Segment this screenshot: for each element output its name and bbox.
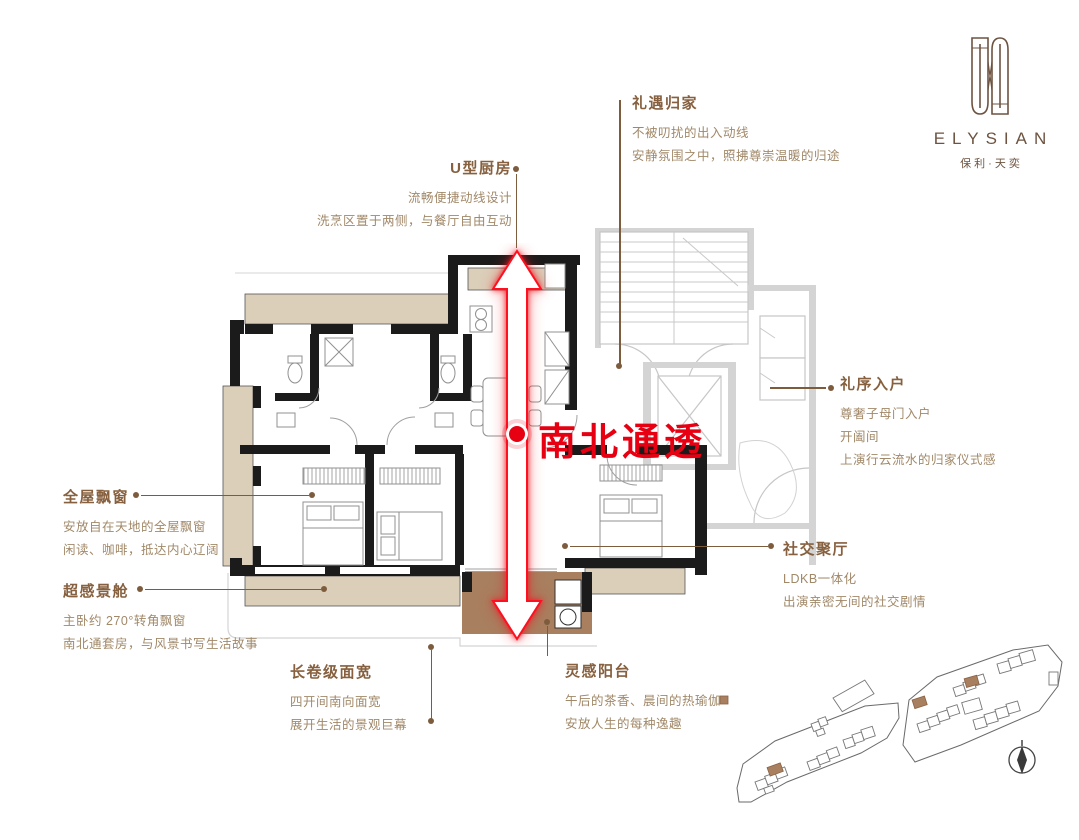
- annotation-title: 社交聚厅: [783, 538, 926, 559]
- annotation-line: 开阖间: [840, 426, 996, 449]
- bed-master: [303, 502, 363, 565]
- annotation-line: LDKB一体化: [783, 568, 926, 591]
- annotation-homecoming: 礼遇归家 不被叨扰的出入动线 安静氛围之中，照拂尊崇温暖的归途: [632, 92, 840, 168]
- leader-dot: [544, 619, 550, 625]
- leader-dot: [828, 385, 834, 391]
- annotation-line: 尊奢子母门入户: [840, 403, 996, 426]
- annotation-line: 展开生活的景观巨幕: [290, 714, 407, 737]
- annotation-title: U型厨房: [258, 157, 512, 178]
- bed-second: [377, 512, 442, 560]
- leader-dot: [321, 586, 327, 592]
- leader-kitchen: [516, 174, 518, 248]
- annotation-line: 主卧约 270°转角飘窗: [63, 610, 258, 633]
- leader-span: [431, 650, 433, 720]
- wardrobe: [380, 468, 440, 484]
- annotation-social: 社交聚厅 LDKB一体化 出演亲密无间的社交剧情: [783, 538, 926, 614]
- annotation-balcony: 灵感阳台 午后的茶香、晨间的热瑜伽 安放人生的每种逸趣: [565, 660, 721, 736]
- annotation-title: 超感景舱: [63, 580, 258, 601]
- annotation-line: 出演亲密无间的社交剧情: [783, 591, 926, 614]
- annotation-title: 长卷级面宽: [290, 661, 407, 682]
- brand-subname: 保利·天奕: [925, 155, 1055, 171]
- leader-balcony: [547, 626, 549, 656]
- annotation-baywindow: 全屋飘窗 安放自在天地的全屋飘窗 闲读、咖啡，抵达内心辽阔: [63, 486, 219, 562]
- annotation-title: 礼遇归家: [632, 92, 840, 113]
- annotation-line: 安放人生的每种逸趣: [565, 713, 721, 736]
- annotation-line: 流畅便捷动线设计: [258, 187, 512, 210]
- annotation-line: 安静氛围之中，照拂尊崇温暖的归途: [632, 145, 840, 168]
- leader-homecoming: [619, 100, 621, 366]
- north-south-label: 南北通透: [538, 411, 706, 466]
- sink-icon: [277, 413, 295, 427]
- annotation-span: 长卷级面宽 四开间南向面宽 展开生活的景观巨幕: [290, 661, 407, 737]
- annotation-line: 闲读、咖啡，抵达内心辽阔: [63, 539, 219, 562]
- wardrobe: [303, 468, 365, 484]
- annotation-title: 礼序入户: [840, 373, 996, 394]
- leader-dot: [562, 543, 568, 549]
- center-dot: [509, 426, 525, 442]
- elysian-logo-icon: [958, 36, 1022, 116]
- leader-dot: [428, 718, 434, 724]
- leader-dot: [768, 543, 774, 549]
- leader-dot: [616, 363, 622, 369]
- leader-dot: [513, 166, 519, 172]
- annotation-line: 洗烹区置于两侧，与餐厅自由互动: [258, 210, 512, 233]
- annotation-title: 全屋飘窗: [63, 486, 219, 507]
- brand-logo: ELYSIAN 保利·天奕: [925, 36, 1055, 171]
- annotation-line: 上演行云流水的归家仪式感: [840, 449, 996, 472]
- annotation-title: 灵感阳台: [565, 660, 721, 681]
- annotation-line: 南北通套房，与风景书写生活故事: [63, 633, 258, 656]
- leader-social: [570, 546, 768, 548]
- annotation-line: 四开间南向面宽: [290, 691, 407, 714]
- annotation-line: 安放自在天地的全屋飘窗: [63, 516, 219, 539]
- annotation-entry: 礼序入户 尊奢子母门入户 开阖间 上演行云流水的归家仪式感: [840, 373, 996, 472]
- annotation-viewcabin: 超感景舱 主卧约 270°转角飘窗 南北通套房，与风景书写生活故事: [63, 580, 258, 656]
- site-plan: [715, 632, 1075, 830]
- leader-dot: [309, 492, 315, 498]
- compass-icon: [1009, 740, 1035, 774]
- brand-name: ELYSIAN: [925, 129, 1055, 149]
- annotation-kitchen: U型厨房 流畅便捷动线设计 洗烹区置于两侧，与餐厅自由互动: [258, 157, 512, 233]
- sink-icon: [435, 413, 453, 427]
- annotation-line: 午后的茶香、晨间的热瑜伽: [565, 690, 721, 713]
- bed-third: [600, 495, 662, 557]
- leader-entry: [770, 387, 826, 389]
- annotation-line: 不被叨扰的出入动线: [632, 122, 840, 145]
